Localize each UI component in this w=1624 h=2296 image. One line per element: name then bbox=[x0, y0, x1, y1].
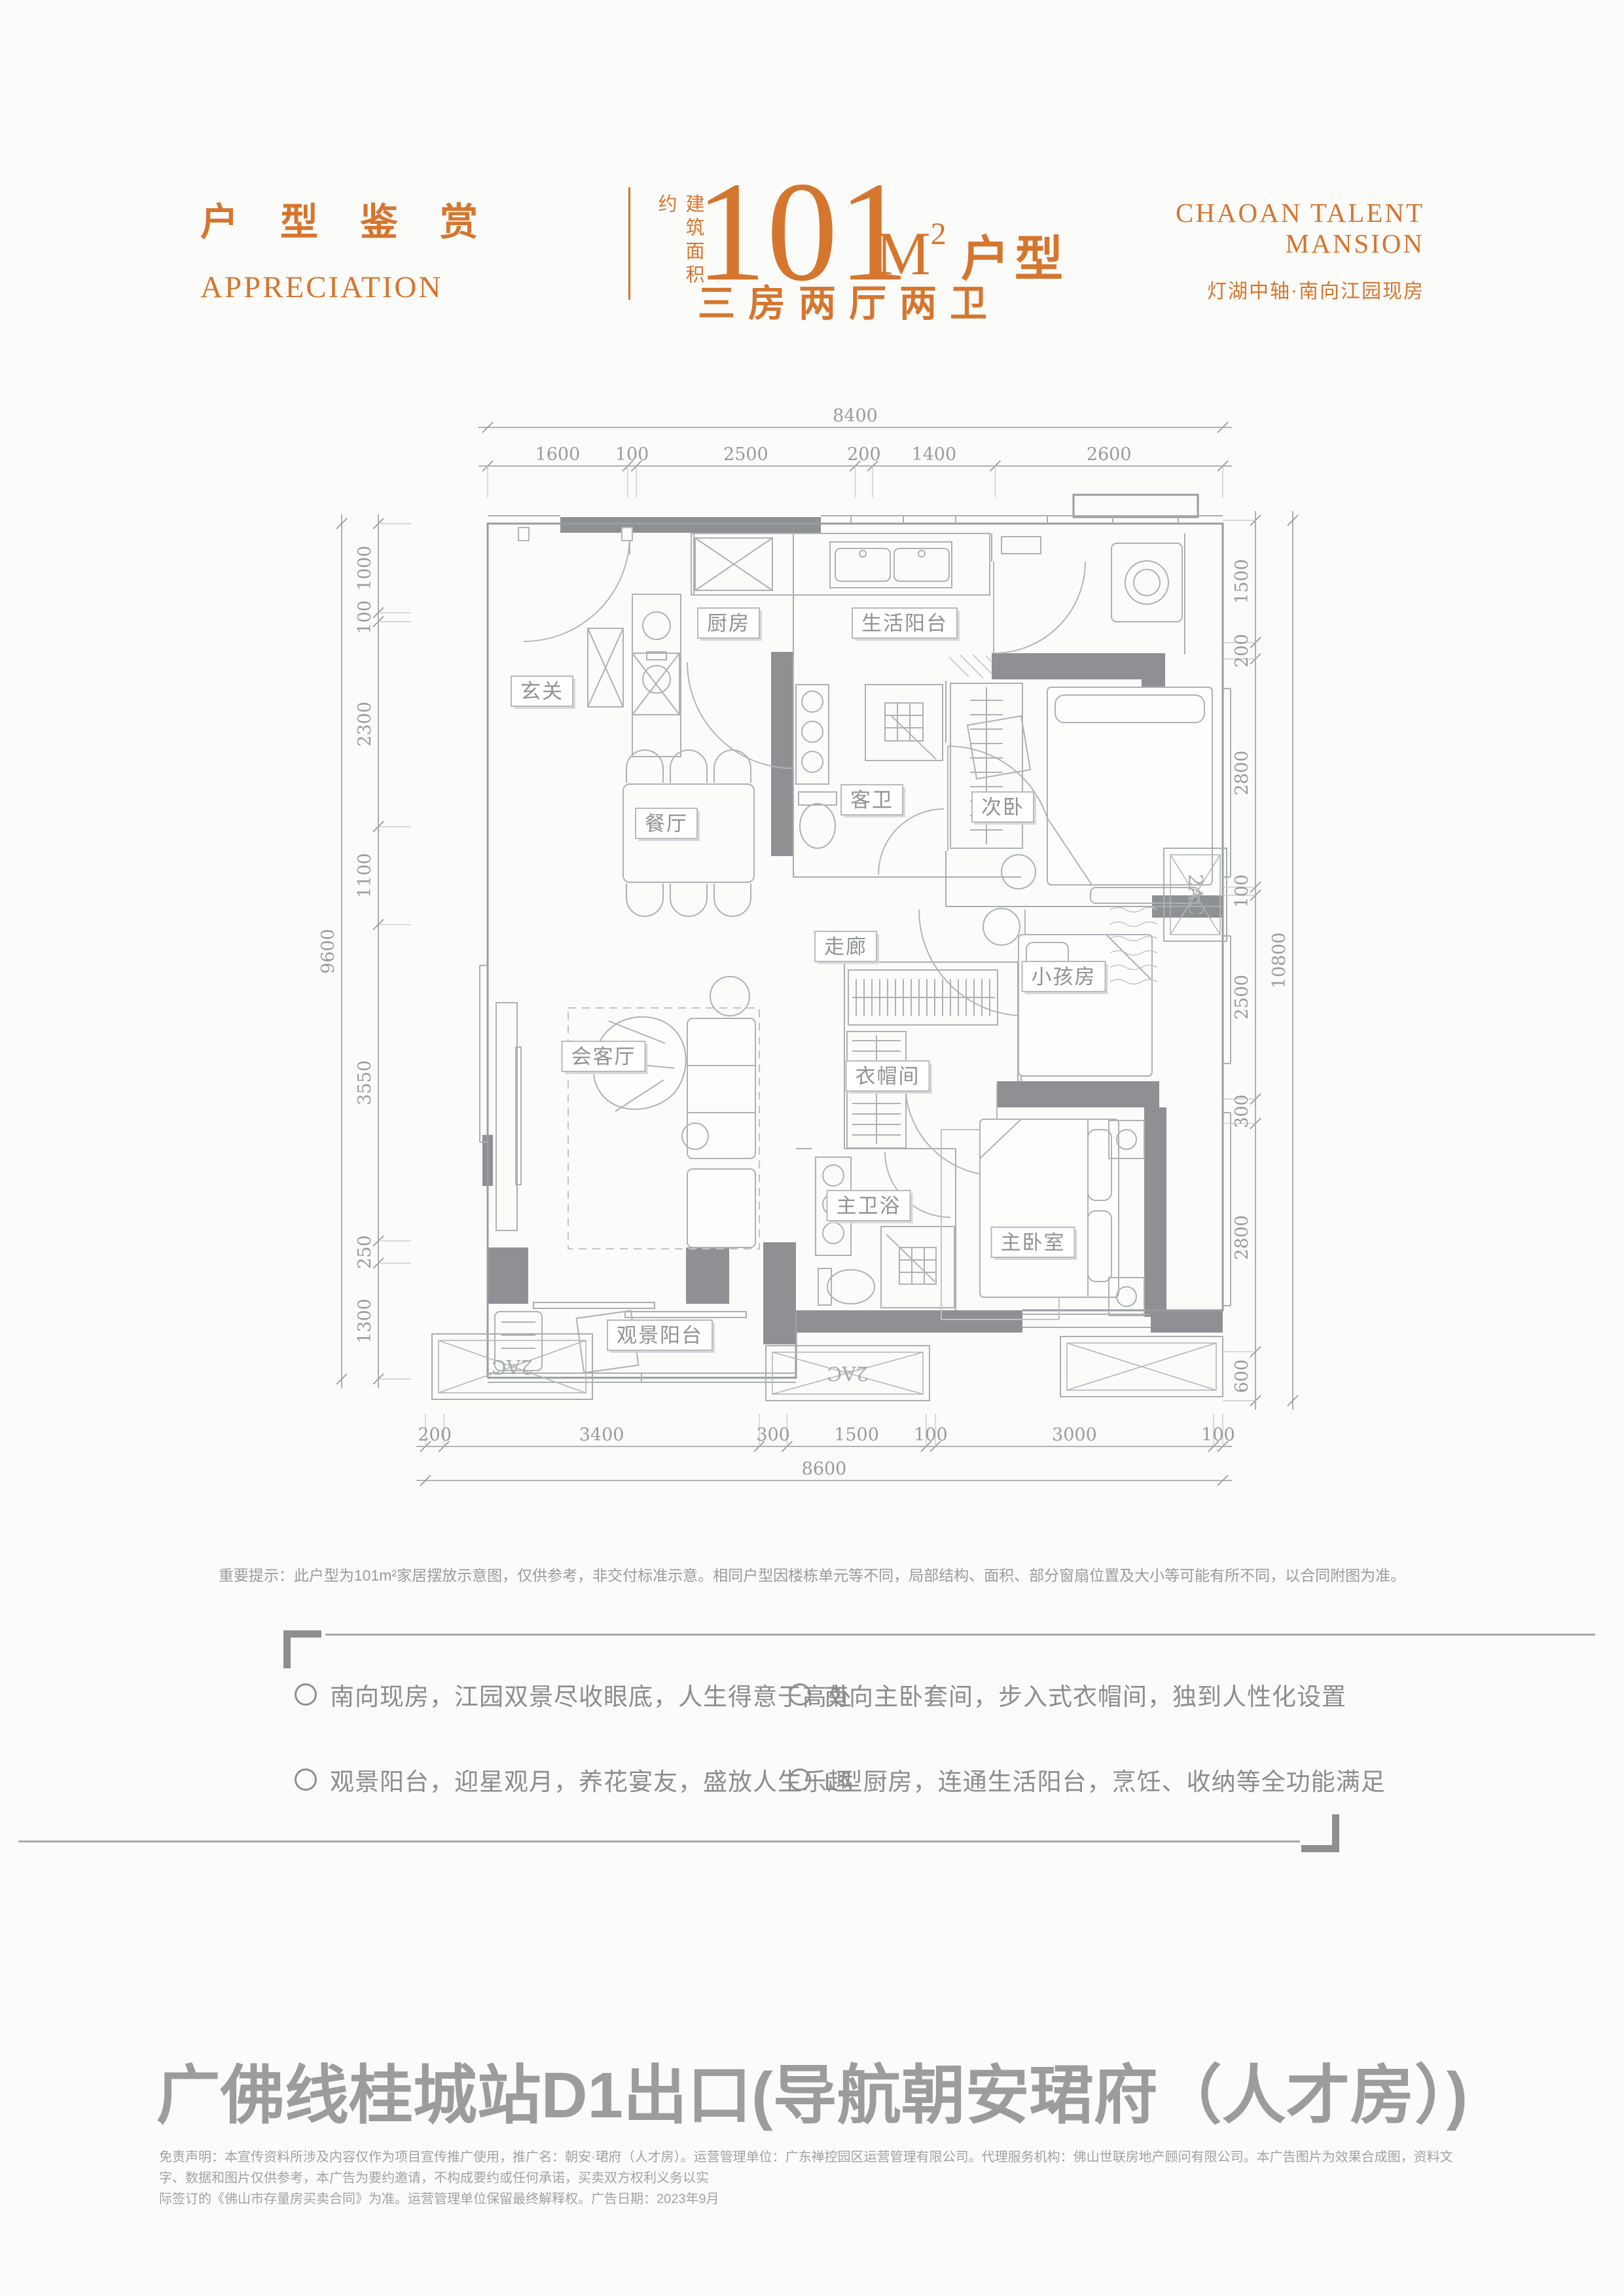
svg-text:200: 200 bbox=[1232, 634, 1252, 668]
svg-text:会客厅: 会客厅 bbox=[571, 1045, 636, 1068]
svg-text:2500: 2500 bbox=[1232, 975, 1252, 1020]
svg-text:300: 300 bbox=[1232, 1094, 1252, 1128]
room-label-会客厅: 会客厅 bbox=[562, 1041, 648, 1074]
svg-text:主卧室: 主卧室 bbox=[1001, 1231, 1066, 1254]
svg-text:3550: 3550 bbox=[355, 1060, 375, 1105]
svg-text:小孩房: 小孩房 bbox=[1032, 965, 1096, 988]
svg-text:300: 300 bbox=[756, 1425, 790, 1445]
brand-name-line2: MANSION bbox=[1047, 228, 1424, 259]
room-label-观景阳台: 观景阳台 bbox=[607, 1320, 715, 1353]
bullet-circle-icon bbox=[295, 1683, 317, 1706]
page-title: 户型鉴赏 bbox=[200, 191, 520, 246]
room-label-走廊: 走廊 bbox=[815, 931, 879, 964]
svg-text:100: 100 bbox=[615, 444, 649, 465]
bullet-circle-icon bbox=[789, 1768, 811, 1791]
brand-block: CHAOAN TALENT MANSION 灯湖中轴·南向江园现房 bbox=[1047, 198, 1424, 304]
svg-text:100: 100 bbox=[1201, 1425, 1235, 1445]
room-label-主卫浴: 主卫浴 bbox=[827, 1191, 913, 1223]
room-label-生活阳台: 生活阳台 bbox=[852, 608, 960, 641]
svg-text:1500: 1500 bbox=[834, 1425, 879, 1445]
legal-disclaimer: 免责声明：本宣传资料所涉及内容仅作为项目宣传推广使用，推广名：朝安·珺府（人才房… bbox=[159, 2147, 1471, 2210]
svg-text:100: 100 bbox=[355, 600, 375, 634]
svg-text:2AC: 2AC bbox=[1183, 874, 1206, 916]
svg-text:100: 100 bbox=[914, 1425, 948, 1445]
feature-item: L型厨房，连通生活阳台，烹饪、收纳等全功能满足 bbox=[789, 1762, 1386, 1797]
floor-plan-diagram: 2AC2AC2AC 160010025002001400260084002003… bbox=[288, 386, 1401, 1551]
header-divider bbox=[628, 187, 630, 300]
svg-text:玄关: 玄关 bbox=[520, 680, 564, 703]
brand-tagline: 灯湖中轴·南向江园现房 bbox=[1047, 275, 1424, 304]
svg-text:次卧: 次卧 bbox=[981, 796, 1024, 819]
svg-text:餐厅: 餐厅 bbox=[645, 812, 688, 835]
plan-inner-walls bbox=[694, 533, 1223, 1310]
room-label-厨房: 厨房 bbox=[698, 608, 762, 641]
svg-text:8600: 8600 bbox=[802, 1459, 847, 1479]
location-headline: 广佛线桂城站D1出口(导航朝安珺府（人才房）) bbox=[0, 2043, 1624, 2136]
poster-page: 户型鉴赏 APPRECIATION 建筑面积约 101 M2 户型 三房两厅两卫… bbox=[0, 0, 1624, 2296]
svg-text:客卫: 客卫 bbox=[850, 789, 893, 812]
ac-platform bbox=[1060, 1336, 1223, 1397]
feature-item: 南向主卧套间，步入式衣帽间，独到人性化设置 bbox=[789, 1677, 1346, 1712]
svg-text:8400: 8400 bbox=[833, 406, 878, 426]
svg-text:2600: 2600 bbox=[1087, 444, 1132, 465]
svg-text:3400: 3400 bbox=[579, 1425, 624, 1445]
legal-line2: 际签订的《佛山市存量房买卖合同》为准。运营管理单位保留最终解释权。广告日期：20… bbox=[159, 2192, 719, 2206]
feature-text: L型厨房，连通生活阳台，烹饪、收纳等全功能满足 bbox=[824, 1762, 1386, 1797]
svg-text:200: 200 bbox=[847, 444, 881, 465]
svg-text:2800: 2800 bbox=[1232, 751, 1252, 796]
corner-bracket-top-left bbox=[283, 1630, 321, 1668]
svg-text:生活阳台: 生活阳台 bbox=[861, 612, 948, 635]
svg-text:2500: 2500 bbox=[723, 444, 768, 465]
bullet-circle-icon bbox=[295, 1768, 317, 1791]
svg-text:250: 250 bbox=[355, 1235, 375, 1269]
svg-text:1500: 1500 bbox=[1232, 559, 1252, 604]
svg-text:2AC: 2AC bbox=[827, 1361, 869, 1384]
svg-text:9600: 9600 bbox=[318, 929, 338, 974]
svg-text:1300: 1300 bbox=[355, 1299, 375, 1344]
feature-text: 南向主卧套间，步入式衣帽间，独到人性化设置 bbox=[824, 1677, 1346, 1712]
feature-item: 观景阳台，迎星观月，养花宴友，盛放人生乐趣 bbox=[295, 1762, 852, 1797]
svg-text:100: 100 bbox=[1232, 874, 1252, 908]
svg-text:1600: 1600 bbox=[535, 444, 581, 465]
plan-disclaimer-note: 重要提示：此户型为101m²家居摆放示意图，仅供参考，非交付标准示意。相同户型因… bbox=[0, 1563, 1624, 1585]
svg-text:1400: 1400 bbox=[911, 444, 956, 465]
svg-text:主卫浴: 主卫浴 bbox=[837, 1194, 901, 1217]
unit-sup: 2 bbox=[931, 217, 947, 251]
corner-bracket-bottom-right bbox=[1301, 1814, 1339, 1852]
svg-text:2AC: 2AC bbox=[492, 1355, 533, 1378]
svg-text:1100: 1100 bbox=[355, 853, 375, 898]
layout-spec: 三房两厅两卫 bbox=[698, 274, 1000, 327]
divider-line-top bbox=[325, 1634, 1595, 1636]
room-label-玄关: 玄关 bbox=[511, 676, 575, 709]
svg-text:600: 600 bbox=[1232, 1359, 1252, 1393]
svg-text:3000: 3000 bbox=[1052, 1425, 1097, 1445]
svg-text:2800: 2800 bbox=[1232, 1215, 1252, 1261]
room-label-主卧室: 主卧室 bbox=[992, 1227, 1077, 1260]
page-title-en: APPRECIATION bbox=[200, 270, 442, 305]
svg-text:衣帽间: 衣帽间 bbox=[856, 1065, 920, 1088]
room-label-小孩房: 小孩房 bbox=[1022, 961, 1108, 994]
svg-text:厨房: 厨房 bbox=[707, 612, 750, 635]
room-label-次卧: 次卧 bbox=[972, 792, 1036, 825]
svg-text:200: 200 bbox=[418, 1425, 452, 1445]
legal-line1: 免责声明：本宣传资料所涉及内容仅作为项目宣传推广使用，推广名：朝安·珺府（人才房… bbox=[159, 2150, 1453, 2185]
svg-text:2300: 2300 bbox=[355, 702, 375, 747]
divider-line-bottom bbox=[18, 1840, 1300, 1842]
svg-text:10800: 10800 bbox=[1269, 933, 1290, 989]
feature-text: 南向现房，江园双景尽收眼底，人生得意于高处 bbox=[330, 1677, 852, 1712]
svg-text:1000: 1000 bbox=[355, 546, 375, 591]
room-label-餐厅: 餐厅 bbox=[636, 808, 700, 841]
brand-name-line1: CHAOAN TALENT bbox=[1047, 198, 1424, 228]
room-label-衣帽间: 衣帽间 bbox=[846, 1061, 932, 1094]
svg-text:观景阳台: 观景阳台 bbox=[617, 1324, 703, 1347]
svg-text:走廊: 走廊 bbox=[824, 935, 867, 958]
room-label-客卫: 客卫 bbox=[841, 785, 905, 817]
ac-platform: 2AC bbox=[432, 1334, 592, 1399]
feature-text: 观景阳台，迎星观月，养花宴友，盛放人生乐趣 bbox=[330, 1762, 852, 1797]
feature-item: 南向现房，江园双景尽收眼底，人生得意于高处 bbox=[295, 1677, 852, 1712]
bullet-circle-icon bbox=[789, 1683, 811, 1706]
